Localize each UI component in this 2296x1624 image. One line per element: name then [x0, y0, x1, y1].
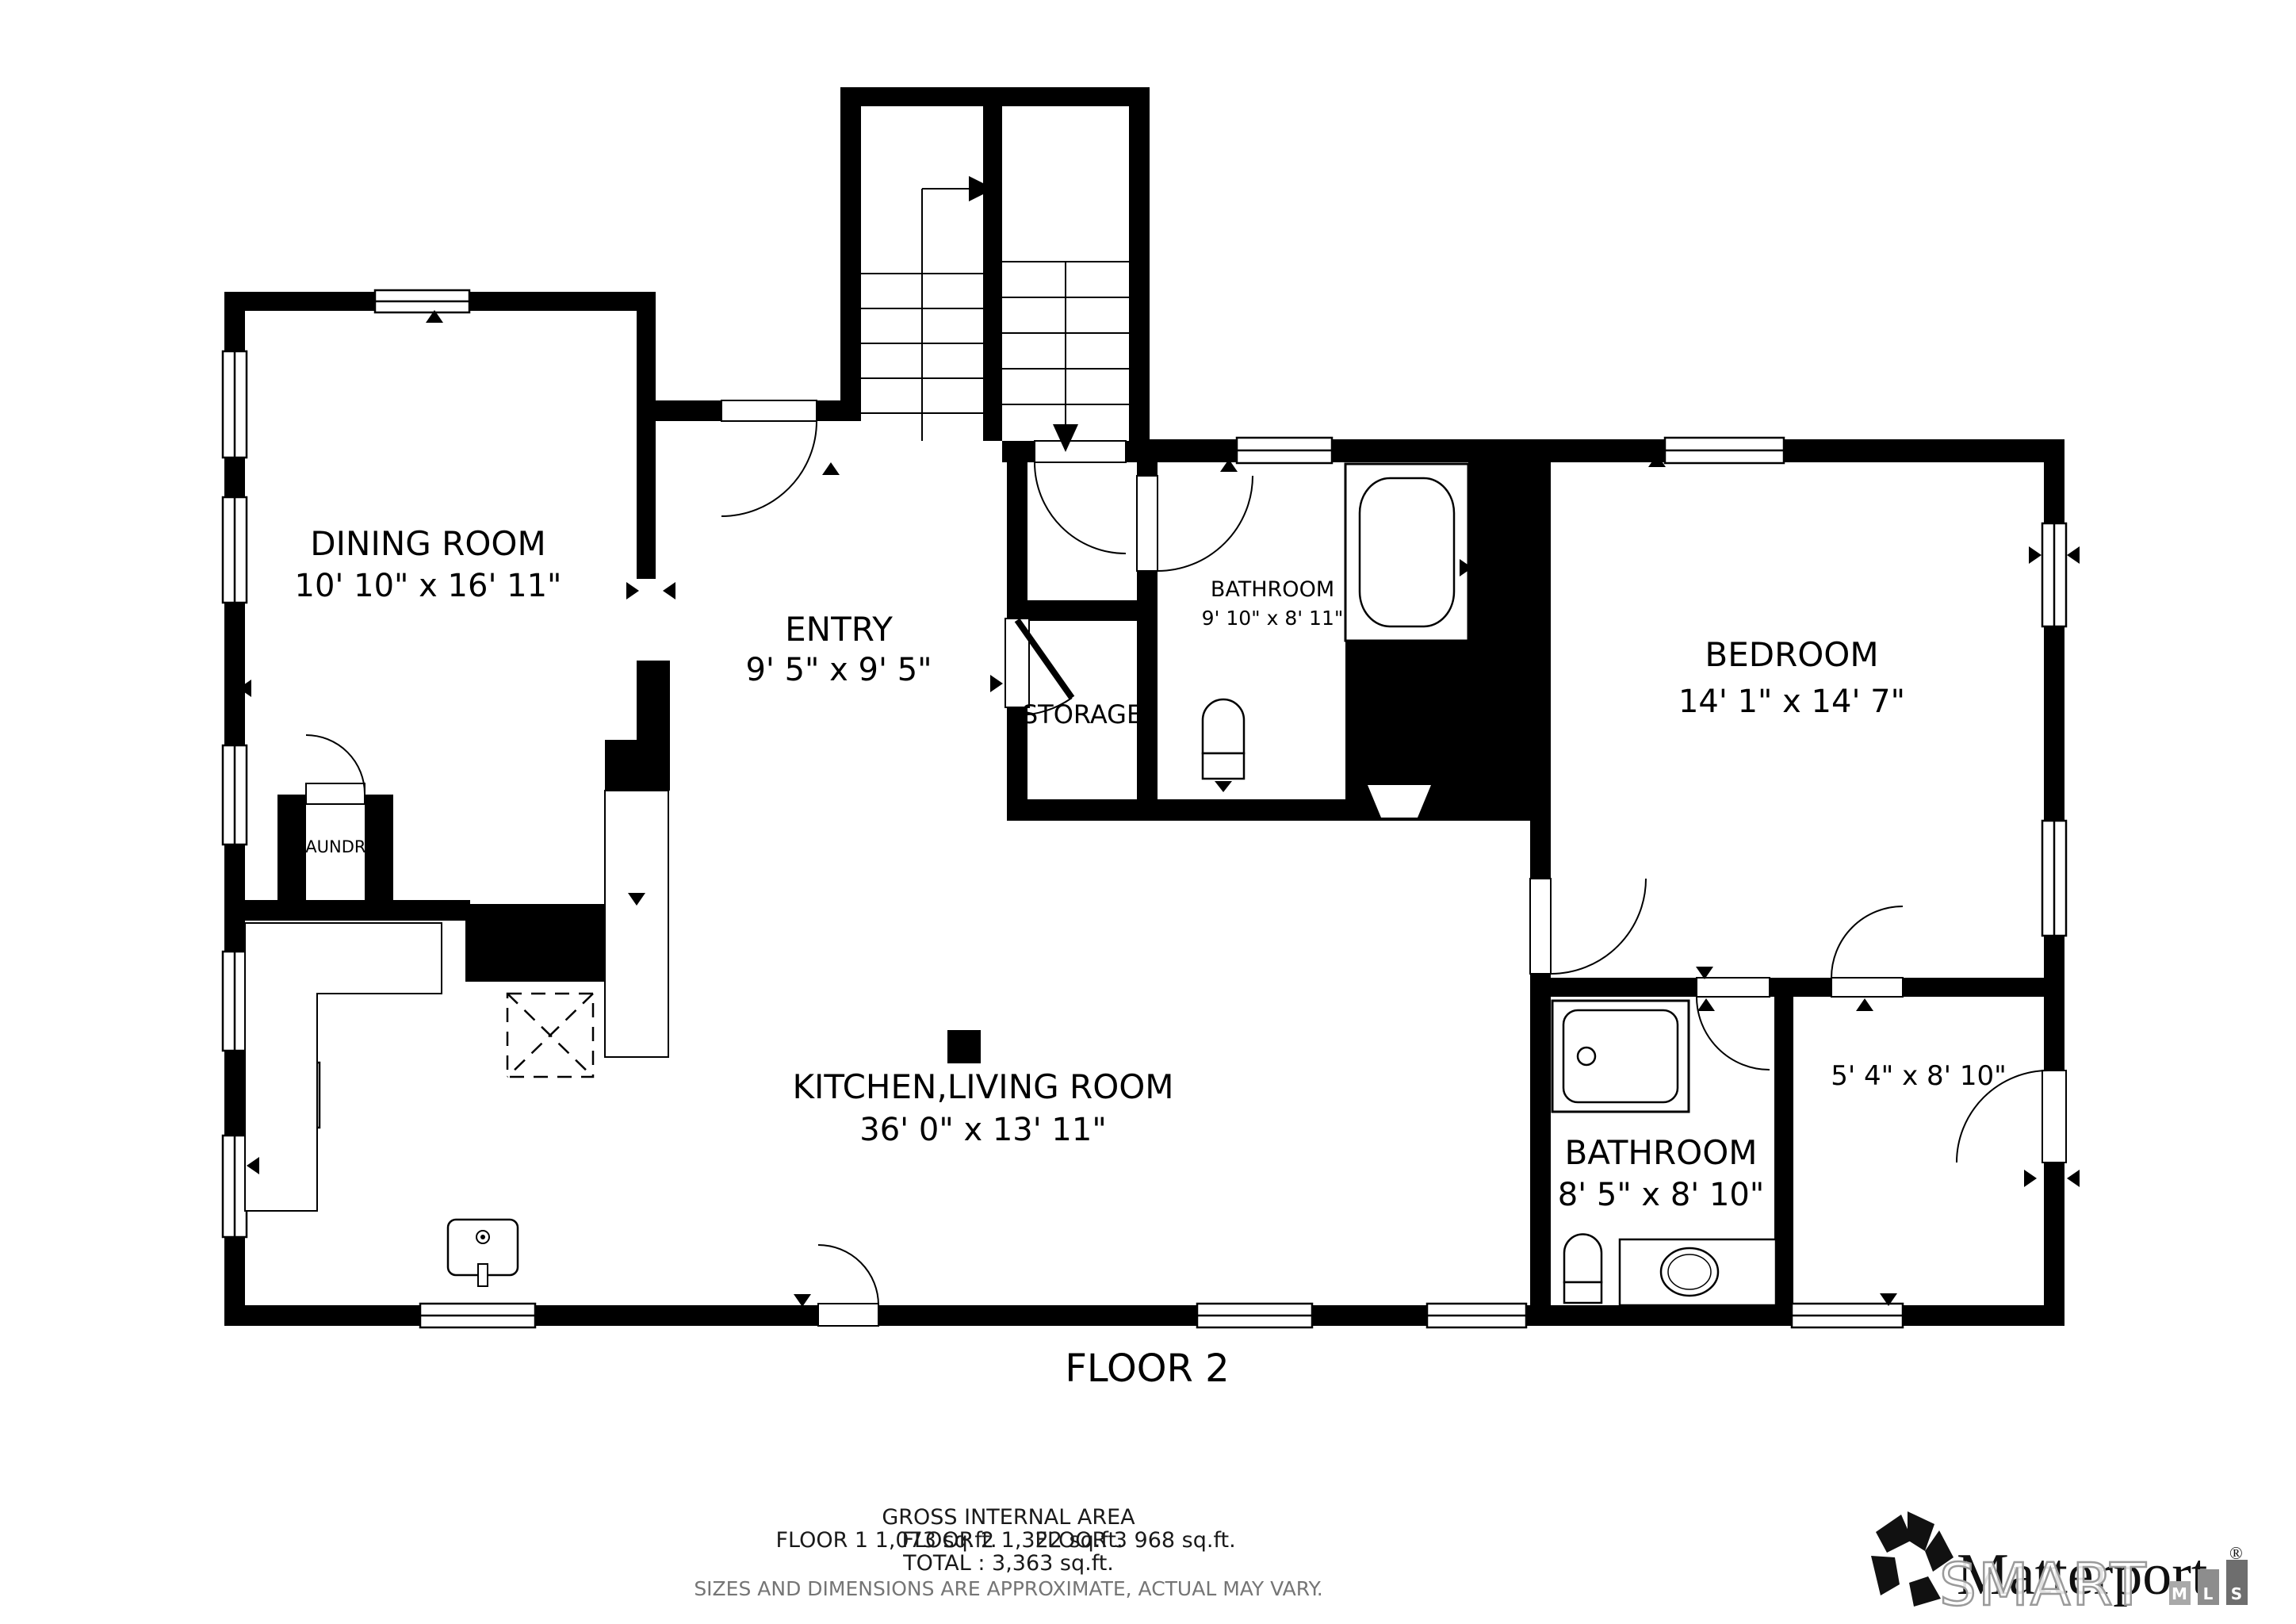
- wall-stair-divider: [983, 106, 1002, 441]
- wall-dining-bottom: [224, 900, 470, 921]
- kitchen-living-title: KITCHEN,LIVING ROOM: [792, 1067, 1173, 1106]
- wall-bathroom-west-lower: [1137, 571, 1158, 821]
- branding: Matterport ® SMART M L S: [1871, 1511, 2248, 1619]
- wall-stair-top: [840, 87, 1150, 106]
- mls-letter-s: S: [2231, 1584, 2242, 1603]
- wall-kitchen-bump: [605, 740, 670, 791]
- footer-disclaimer: SIZES AND DIMENSIONS ARE APPROXIMATE, AC…: [694, 1577, 1322, 1600]
- wall-bedroom-bottom-c: [1903, 978, 2064, 997]
- wall-dining-right-upper: [637, 292, 656, 579]
- bathtub: [1345, 464, 1468, 641]
- floor-plan: DINING ROOM 10' 10" x 16' 11" ENTRY 9' 5…: [0, 0, 2296, 1624]
- wall-bedroom-west-lower: [1530, 974, 1551, 1305]
- floorplan-screenshot: DINING ROOM 10' 10" x 16' 11" ENTRY 9' 5…: [0, 0, 2296, 1624]
- wall-stair-south-a: [1002, 441, 1035, 462]
- window-top-dining: [375, 290, 469, 312]
- doors: [306, 400, 2066, 1326]
- bathroom-top-dims: 9' 10" x 8' 11": [1202, 607, 1344, 630]
- marker-right-icon: [626, 582, 639, 599]
- wall-stair-west: [840, 87, 861, 421]
- toilet-bottom-bathroom: [1564, 1234, 1601, 1303]
- kitchen-sink: [448, 1220, 518, 1286]
- stair-flight-down: [1002, 262, 1129, 452]
- bathroom-bottom-title: BATHROOM: [1564, 1133, 1757, 1172]
- bedroom-title: BEDROOM: [1705, 635, 1878, 674]
- door-bedroom-from-kitchen: [1530, 879, 1646, 974]
- bedroom-dims: 14' 1" x 14' 7": [1678, 684, 1905, 720]
- kitchen-living-dims: 36' 0" x 13' 11": [859, 1112, 1106, 1148]
- marker-up-icon: [822, 462, 840, 475]
- wall-kitchen-peninsula: [465, 904, 605, 982]
- kitchen-counter-strip: [605, 791, 668, 1057]
- dining-room-title: DINING ROOM: [310, 524, 545, 563]
- window-top-bedroom: [1665, 438, 1784, 463]
- window-left-1: [223, 351, 247, 458]
- wall-bedroom-west-upper: [1530, 462, 1551, 879]
- marker-up-icon: [1856, 998, 1873, 1011]
- dishwasher-dashed-box: [507, 994, 593, 1077]
- marker-right-icon: [990, 675, 1003, 692]
- marker-left-icon: [2067, 546, 2080, 564]
- window-left-5: [223, 1136, 247, 1237]
- window-bottom-3: [1427, 1304, 1526, 1327]
- window-left-4: [223, 952, 247, 1051]
- door-laundry: [306, 735, 365, 804]
- wall-bath-closet-divider: [1774, 997, 1793, 1305]
- laundry-label: LAUNDRY: [296, 837, 375, 856]
- marker-up-icon: [1697, 998, 1715, 1011]
- window-left-3: [223, 745, 247, 845]
- entry-title: ENTRY: [785, 610, 893, 649]
- smartmls-watermark: SMART: [1939, 1551, 2148, 1619]
- mls-letter-l: L: [2203, 1584, 2214, 1603]
- wall-bedroom-bottom-b: [1770, 978, 1831, 997]
- door-closet: [1831, 906, 1903, 997]
- door-bathroom-bottom: [1697, 978, 1770, 1070]
- window-bottom-2: [1197, 1304, 1312, 1327]
- chimney-block: [947, 1030, 981, 1063]
- footer-area-title: GROSS INTERNAL AREA: [882, 1505, 1135, 1530]
- toilet-marker: [1215, 781, 1232, 792]
- marker-left-icon: [2067, 1170, 2080, 1187]
- wall-stair-east: [1129, 87, 1150, 441]
- window-right-2: [2042, 821, 2066, 936]
- storage-label: STORAGE: [1022, 699, 1142, 730]
- toilet-top-bathroom: [1203, 699, 1244, 792]
- footer: GROSS INTERNAL AREA FLOOR 1 1,073 sq.ft.…: [694, 1505, 1322, 1600]
- wall-entry-top-west: [656, 400, 725, 421]
- wall-bedroom-bottom-a: [1530, 978, 1697, 997]
- closet-dims: 5' 4" x 8' 10": [1831, 1060, 2006, 1092]
- wall-mass-right-of-tub: [1468, 462, 1530, 641]
- bathroom-bottom-dims: 8' 5" x 8' 10": [1558, 1177, 1765, 1213]
- marker-right-icon: [2029, 546, 2042, 564]
- entry-dims: 9' 5" x 9' 5": [745, 652, 932, 688]
- door-stair-landing: [1035, 441, 1126, 553]
- sink-vanity: [1620, 1239, 1776, 1305]
- footer-floor3: FLOOR 3 968 sq.ft.: [1035, 1528, 1235, 1553]
- wall-storage-top: [1027, 600, 1137, 621]
- door-entry-front: [721, 400, 817, 516]
- window-bottom-4: [1792, 1304, 1903, 1327]
- door-bathroom-top: [1137, 476, 1253, 571]
- window-right-1: [2042, 523, 2066, 626]
- footer-total: TOTAL : 3,363 sq.ft.: [902, 1551, 1114, 1576]
- window-top-bathroom: [1237, 438, 1332, 463]
- marker-left-icon: [663, 582, 675, 599]
- wall-dining-right-stub: [637, 661, 670, 743]
- wall-bathroom-west-upper: [1137, 462, 1158, 476]
- door-kitchen-bottom: [818, 1245, 878, 1326]
- dining-room-dims: 10' 10" x 16' 11": [295, 568, 562, 604]
- stair-flight-up: [861, 176, 994, 441]
- marker-right-icon: [2024, 1170, 2037, 1187]
- floor-label: FLOOR 2: [1065, 1346, 1229, 1391]
- wall-stair-south-b: [1126, 441, 1150, 462]
- marker-down-icon: [794, 1294, 811, 1307]
- window-left-2: [223, 497, 247, 603]
- shower: [1552, 1001, 1689, 1112]
- bathroom-top-title: BATHROOM: [1211, 577, 1334, 602]
- mls-letter-m: M: [2172, 1584, 2187, 1603]
- window-bottom-1: [420, 1304, 535, 1327]
